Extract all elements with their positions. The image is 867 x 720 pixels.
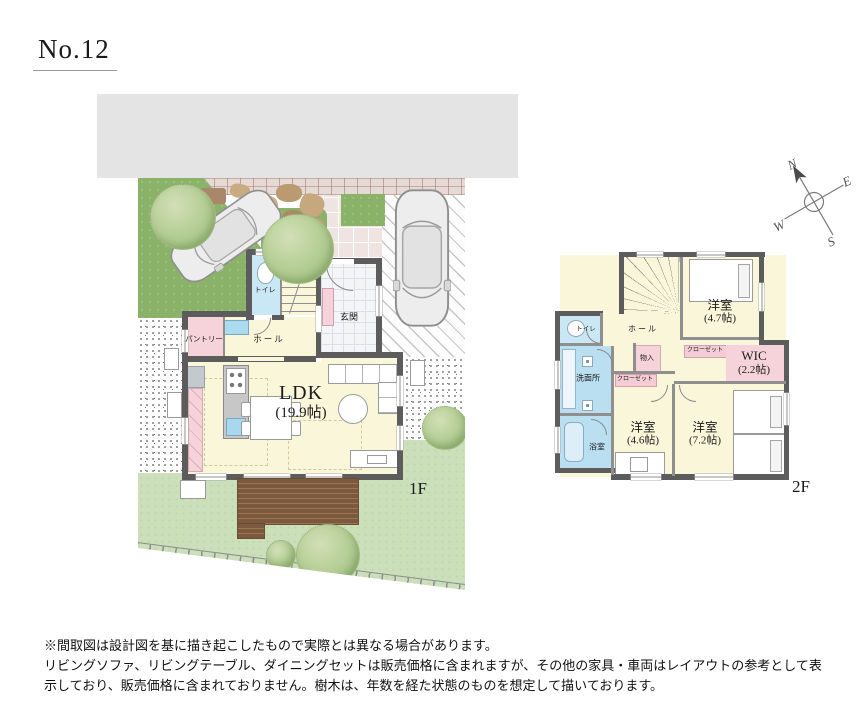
disclaimer-line: ※間取図は設計図を基に描き起こしたもので実際とは異なる場合があります。 — [44, 636, 854, 656]
tree — [262, 214, 334, 284]
partition — [682, 337, 759, 340]
disclaimer: ※間取図は設計図を基に描き起こしたもので実際とは異なる場合があります。 リビング… — [44, 636, 854, 696]
ldk-label: LDK (19.9帖) — [275, 382, 326, 422]
wash-basin-hall — [223, 320, 249, 335]
window — [695, 474, 733, 480]
window — [376, 286, 382, 316]
ac-unit — [180, 480, 206, 499]
wood-deck-step — [237, 523, 265, 539]
tv-board — [350, 450, 402, 468]
floorplan-sheet: No.12 — [0, 0, 867, 720]
compass-rose: N E S W — [768, 150, 860, 250]
genkan-label: 玄関 — [340, 312, 358, 322]
grass-patch-c — [341, 194, 385, 226]
site-plan-1f: LDK (19.9帖) 玄関 ホール トイレ パントリー — [138, 178, 465, 590]
toilet-label-1f: トイレ — [255, 286, 276, 294]
door-opening — [316, 306, 321, 332]
washroom-fixture — [582, 400, 593, 411]
hall-label-1f: ホール — [253, 335, 285, 345]
round-table — [338, 394, 368, 424]
bedroom-b-label: 洋室 (4.6帖) — [627, 420, 659, 447]
compass-s: S — [825, 233, 838, 250]
title-underline — [33, 70, 117, 71]
floor-label-1f: 1F — [409, 479, 427, 499]
bed — [733, 434, 785, 478]
page-title: No.12 — [38, 34, 110, 65]
partition — [614, 371, 675, 374]
neighbor-building-block — [97, 94, 518, 178]
pantry-label: パントリー — [185, 336, 223, 345]
tree — [150, 184, 216, 250]
window — [759, 283, 764, 311]
sofa-seat-right — [378, 382, 398, 414]
shoe-cabinet — [322, 288, 334, 326]
window — [397, 426, 403, 450]
window — [631, 474, 661, 480]
closet-a-label: クローゼット — [687, 348, 723, 355]
window — [555, 361, 560, 389]
washroom-fixture — [582, 356, 593, 367]
wall — [555, 468, 615, 473]
window — [182, 418, 188, 444]
dining-chair — [241, 421, 251, 436]
window — [397, 376, 403, 406]
hall-label-2f: ホール — [628, 324, 658, 333]
window — [697, 252, 725, 257]
sofa-seat-top — [328, 364, 398, 384]
partition — [680, 257, 683, 340]
bedroom-a-label: 洋室 (4.7帖) — [704, 298, 736, 325]
ac-unit — [167, 392, 182, 418]
bedroom-c-label: 洋室 (7.2帖) — [689, 420, 721, 447]
wall — [555, 311, 603, 316]
partition — [560, 413, 611, 416]
dining-chair — [241, 402, 251, 417]
partition — [674, 381, 786, 384]
storage-strip — [188, 388, 203, 472]
wood-deck — [237, 478, 359, 525]
tree — [296, 524, 360, 586]
bathtub — [564, 422, 584, 462]
disclaimer-line: 示しており、販売価格に含まれておりません。樹木は、年数を経た状態のものを想定して… — [44, 676, 854, 696]
bed — [733, 390, 785, 434]
partition — [223, 317, 225, 360]
ac-unit — [410, 360, 425, 386]
opening — [238, 357, 284, 361]
compass-e: E — [839, 173, 853, 190]
partition — [633, 343, 636, 373]
desk — [615, 452, 665, 476]
vanity-counter — [562, 349, 576, 409]
wall — [316, 352, 403, 358]
partition — [560, 343, 602, 346]
refrigerator — [186, 366, 205, 388]
wall — [619, 252, 624, 314]
toilet-label-2f: トイレ — [576, 325, 596, 332]
partition — [611, 346, 614, 475]
window — [637, 252, 663, 257]
storage-label: 物入 — [640, 354, 654, 362]
wic-label: WIC (2.2帖) — [738, 349, 770, 377]
wall — [182, 311, 252, 317]
car-top-view-right — [393, 186, 451, 330]
washroom-label: 洗面所 — [576, 373, 600, 382]
bath-label: 浴室 — [589, 442, 605, 451]
bed — [689, 259, 753, 302]
wall — [397, 352, 403, 480]
ac-unit — [164, 348, 179, 370]
wall — [246, 249, 252, 320]
window — [784, 393, 789, 425]
floor-plan-2f: 洋室 (4.7帖) WIC (2.2帖) 洋室 (4.6帖) 洋室 (7.2帖)… — [555, 245, 800, 495]
tree — [266, 540, 296, 570]
disclaimer-line: リビングソファ、リビングテーブル、ダイニングセットは販売価格に含まれますが、その… — [44, 656, 854, 676]
partition — [672, 384, 675, 476]
dining-chair — [291, 421, 301, 436]
tree — [422, 406, 468, 450]
closet-b-label: クローゼット — [617, 377, 653, 384]
window — [555, 427, 560, 453]
staircase-2f — [622, 257, 681, 314]
